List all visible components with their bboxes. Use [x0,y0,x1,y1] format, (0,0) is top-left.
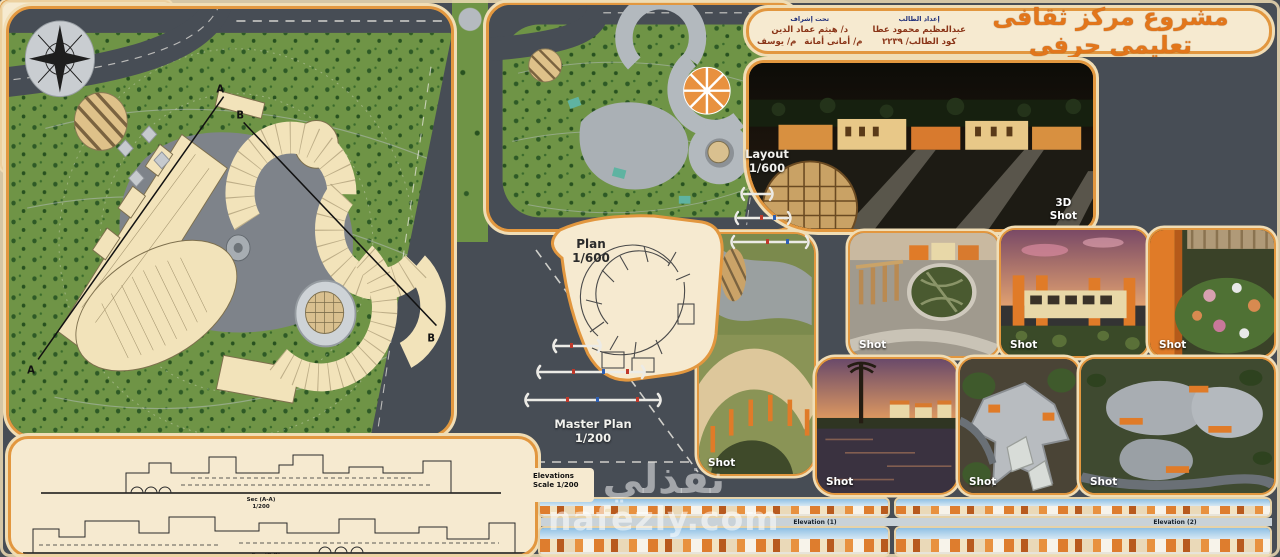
sections-panel: Sec (A-A) 1/200 Sec (B-B) 1/200 [8,436,538,557]
section-marker-a1: A [216,83,225,96]
elevation-2-label: Elevation (2) [1100,519,1250,526]
supervisor-3: م/ يوسف [757,37,796,47]
supervisor-2: م/ أمانى أمانة [804,37,862,47]
credits-block: إعداد الطالب عبدالعظيم محمود عطا كود الط… [757,15,966,47]
section-marker-b1: B [236,109,244,122]
section-b-label: Sec (B-B) 1/200 [196,553,336,557]
title-bar: إعداد الطالب عبدالعظيم محمود عطا كود الط… [746,8,1272,54]
student-code: كود الطالب/ ٢٢٣٩ [872,37,965,47]
page-title: مشروع مركز ثقافى تعليمى حرفى [966,3,1255,59]
elevation-1-label: Elevation (1) [740,519,890,526]
student-name: عبدالعظيم محمود عطا [872,25,965,35]
shot-label: Shot [1090,476,1117,488]
layout-plan-label: Layout 1/600 [728,148,806,176]
render-image [1001,230,1147,356]
master-plan-panel: A A B B [6,6,454,438]
section-a-drawing [31,447,521,499]
shot-label: Shot [1010,339,1037,351]
prepared-by-block: إعداد الطالب عبدالعظيم محمود عطا كود الط… [872,15,965,47]
supervision-header: تحت إشراف [757,15,862,23]
shot-label: Shot [708,457,735,469]
render-image [850,233,998,356]
section-b-drawing [19,509,534,557]
shot-label: Shot [969,476,996,488]
render-image [1150,230,1274,356]
plan-label: Plan 1/600 [556,238,626,266]
elevation-render-2 [894,497,1272,518]
compass-icon [25,21,94,97]
shot-label: Shot [826,476,853,488]
render-image [960,359,1078,493]
elevation-render-3 [538,526,890,557]
render-shot-sunset-building: Shot [999,228,1149,358]
presentation-board: { "board": { "title": "مشروع مركز ثقافى … [0,0,1280,557]
supervisor-1: د/ هيثم عماد الدين [757,25,862,35]
render-shot-sunset-waterfront: Shot [815,357,959,495]
master-plan-label: Master Plan 1/200 [518,418,668,446]
supervision-block: تحت إشراف د/ هيثم عماد الدين م/ أمانى أم… [757,15,862,47]
section-marker-b2: B [427,332,435,345]
render-shot-aerial-canopies: Shot [958,357,1080,495]
render-image [1081,359,1274,493]
master-scale-bars [518,336,668,416]
master-plan-drawing: A A B B [9,9,451,435]
elevation-render-4 [894,526,1272,557]
render-shot-courtyard-garden: Shot [1148,228,1276,358]
shot-3d-label: 3D Shot [1050,197,1077,223]
prepared-header: إعداد الطالب [872,15,965,23]
shot-label: Shot [859,339,886,351]
shot-label: Shot [1159,339,1186,351]
layout-scale-bars [728,184,814,254]
render-image [817,359,957,493]
render-shot-aerial-complex: Shot [1079,357,1276,495]
render-shot-plaza-pergola: Shot [848,231,1000,358]
section-marker-a2: A [27,364,36,377]
elevations-title: Elevations Scale 1/200 [533,472,593,490]
